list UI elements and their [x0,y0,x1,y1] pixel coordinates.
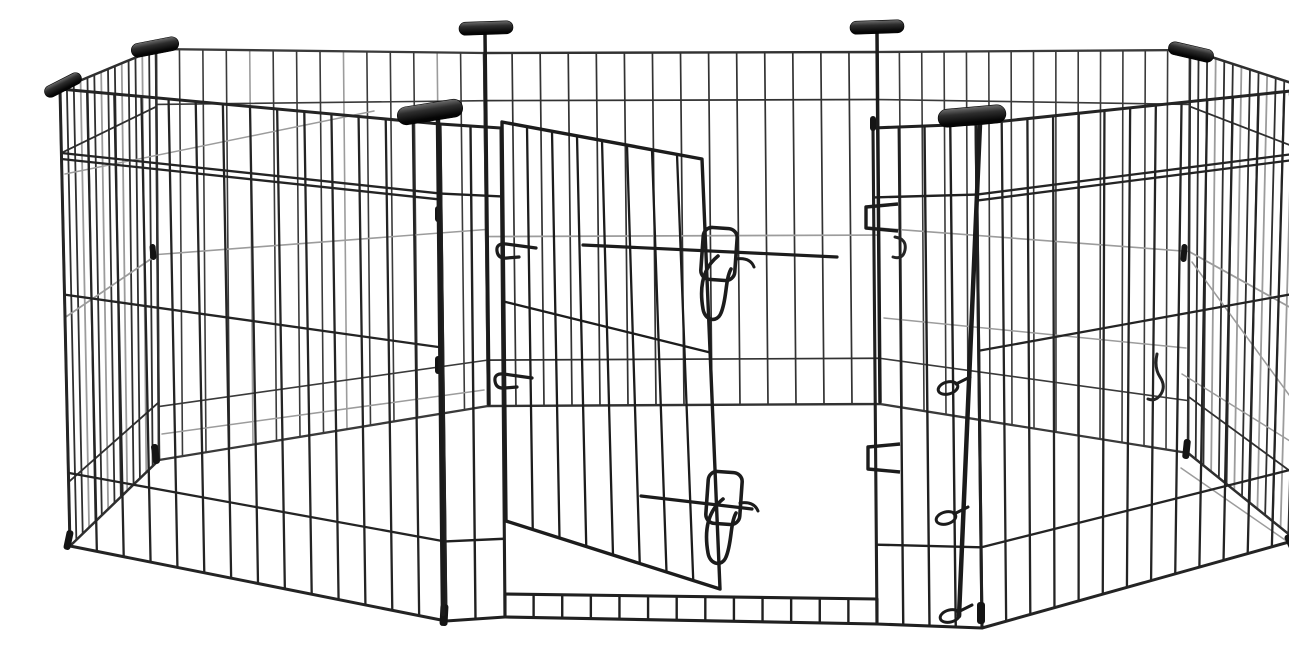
corner-sleeve [1180,244,1187,262]
handle-grip [850,20,904,35]
corner-sleeve [977,602,985,624]
handle-grip [459,21,513,36]
pet-pen-svg [40,16,1289,646]
corner-sleeve [870,116,876,131]
product-photo [40,16,1289,646]
